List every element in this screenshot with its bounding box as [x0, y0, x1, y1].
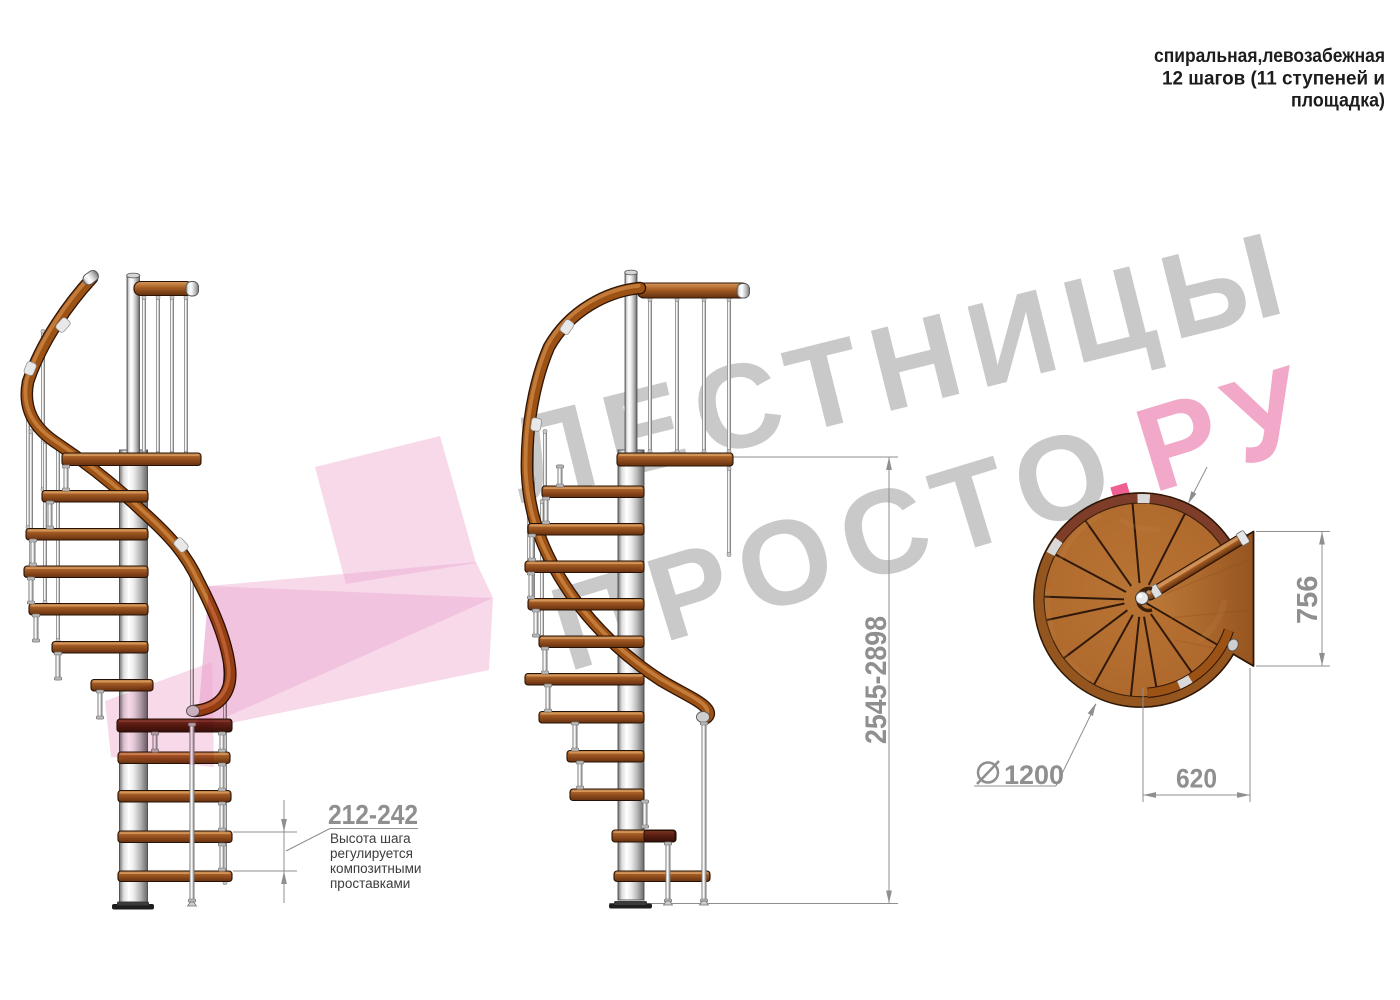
svg-text:1200: 1200 [1004, 760, 1064, 790]
svg-text:проставками: проставками [330, 876, 410, 891]
svg-text:756: 756 [1292, 576, 1324, 624]
svg-text:спиральная,левозабежная: спиральная,левозабежная [1154, 46, 1385, 67]
svg-text:2545-2898: 2545-2898 [860, 616, 893, 744]
svg-text:площадка): площадка) [1291, 91, 1385, 112]
svg-text:регулируется: регулируется [330, 846, 413, 861]
svg-text:12 шагов (11 ступеней и: 12 шагов (11 ступеней и [1162, 68, 1385, 89]
svg-text:212-242: 212-242 [328, 799, 418, 830]
svg-text:композитными: композитными [330, 861, 421, 876]
svg-text:Высота шага: Высота шага [330, 831, 411, 846]
svg-text:620: 620 [1176, 764, 1217, 794]
